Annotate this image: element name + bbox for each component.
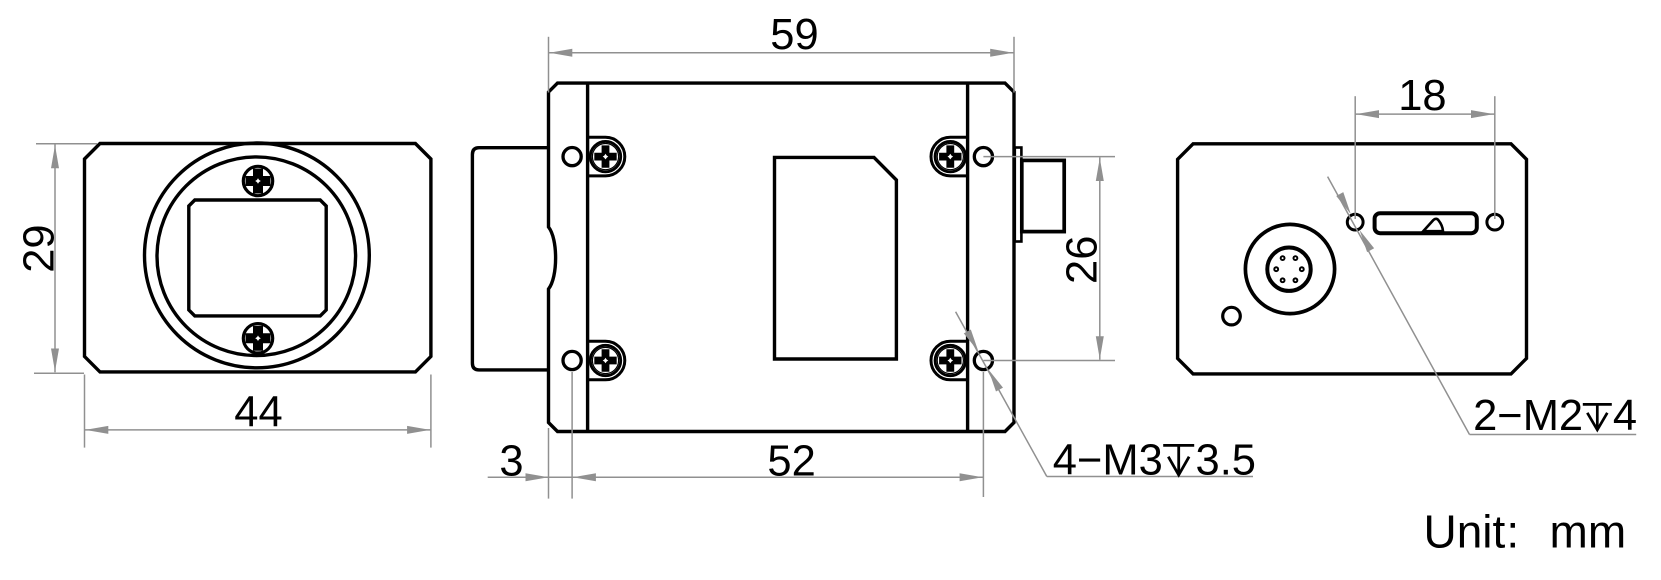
svg-text:4: 4 (1613, 392, 1637, 440)
svg-text:2−M2: 2−M2 (1473, 392, 1583, 440)
svg-text:44: 44 (234, 389, 282, 437)
svg-text:4−M3: 4−M3 (1053, 437, 1163, 485)
svg-text:18: 18 (1398, 72, 1446, 120)
svg-text:3: 3 (499, 437, 523, 485)
svg-text:3.5: 3.5 (1196, 437, 1256, 485)
svg-text:26: 26 (1058, 236, 1106, 284)
svg-text:59: 59 (770, 11, 818, 59)
svg-text:29: 29 (16, 224, 64, 272)
svg-text:52: 52 (767, 437, 815, 485)
